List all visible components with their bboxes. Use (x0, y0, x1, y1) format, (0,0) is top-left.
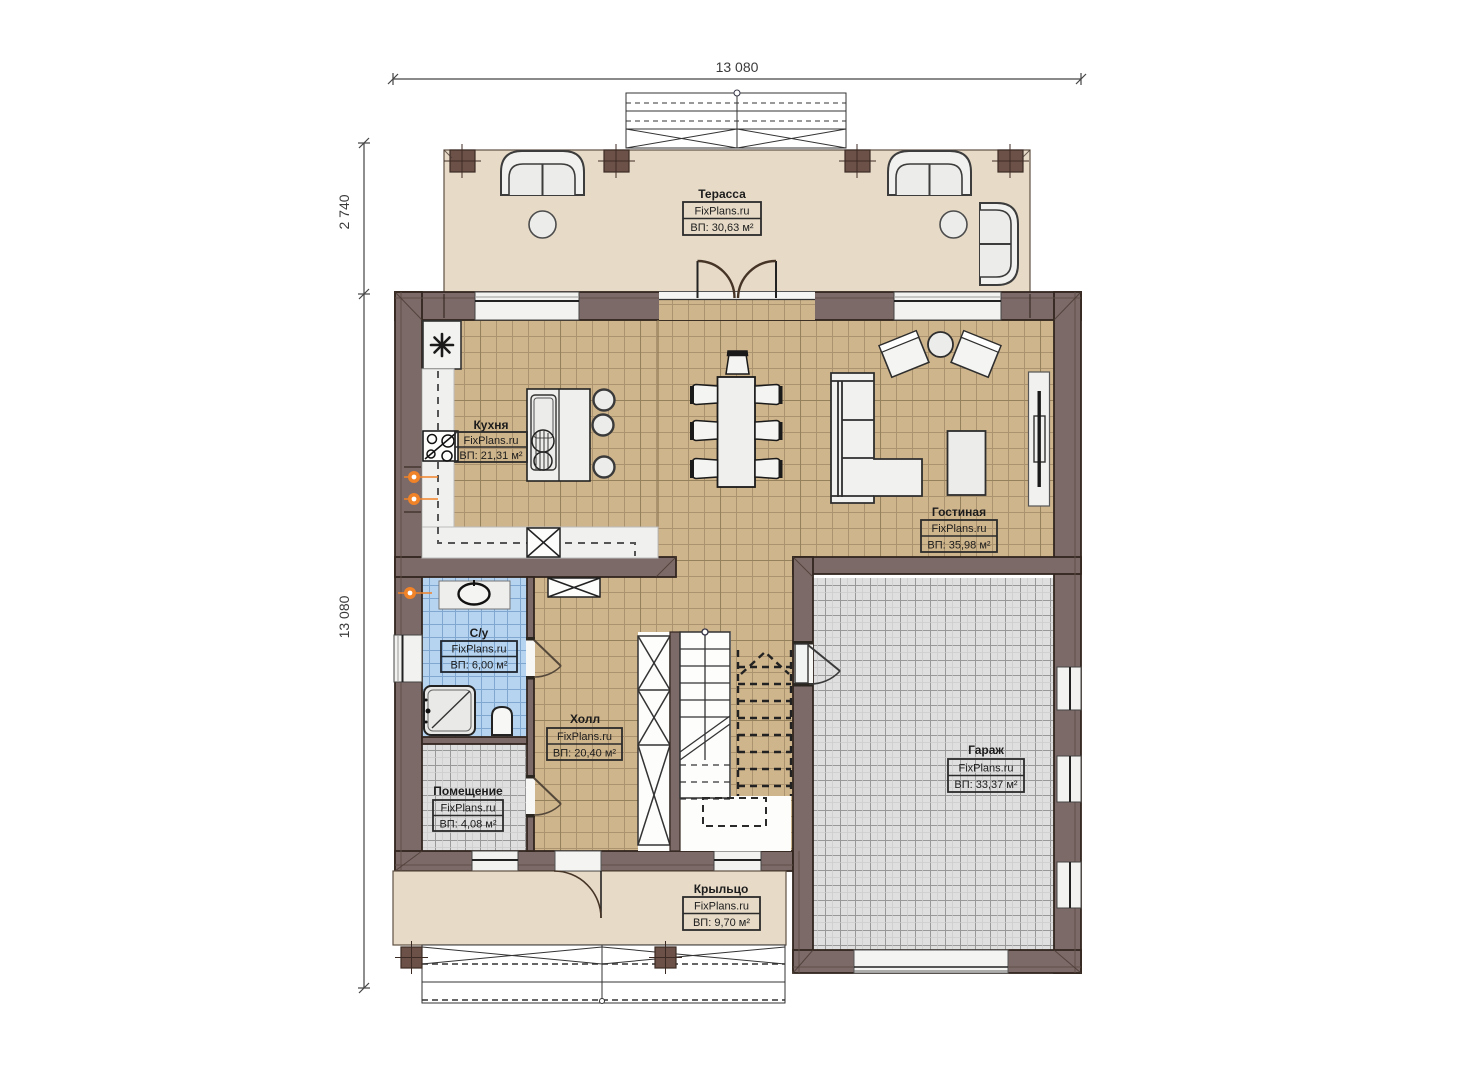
svg-text:Гараж: Гараж (968, 743, 1004, 757)
svg-text:ВП: 9,70 м²: ВП: 9,70 м² (693, 917, 750, 929)
svg-text:ВП: 20,40 м²: ВП: 20,40 м² (553, 748, 617, 760)
svg-text:13 080: 13 080 (336, 595, 352, 638)
svg-text:13 080: 13 080 (716, 59, 759, 75)
svg-text:ВП: 35,98 м²: ВП: 35,98 м² (927, 540, 991, 552)
svg-text:ВП: 33,37 м²: ВП: 33,37 м² (954, 779, 1018, 791)
svg-text:Помещение: Помещение (433, 784, 503, 798)
svg-text:С/у: С/у (470, 626, 489, 640)
svg-text:Крыльцо: Крыльцо (694, 882, 749, 896)
svg-text:FixPlans.ru: FixPlans.ru (463, 435, 518, 447)
svg-text:Терасса: Терасса (698, 187, 746, 201)
svg-text:FixPlans.ru: FixPlans.ru (557, 731, 612, 743)
svg-text:FixPlans.ru: FixPlans.ru (958, 763, 1013, 775)
svg-text:2 740: 2 740 (336, 194, 352, 229)
svg-text:FixPlans.ru: FixPlans.ru (694, 206, 749, 218)
svg-text:FixPlans.ru: FixPlans.ru (931, 523, 986, 535)
svg-text:FixPlans.ru: FixPlans.ru (451, 644, 506, 656)
svg-text:Кухня: Кухня (473, 418, 508, 432)
svg-text:ВП: 21,31 м²: ВП: 21,31 м² (459, 450, 523, 462)
svg-text:ВП: 4,08 м²: ВП: 4,08 м² (439, 819, 496, 831)
svg-text:FixPlans.ru: FixPlans.ru (694, 901, 749, 913)
svg-text:FixPlans.ru: FixPlans.ru (440, 803, 495, 815)
svg-text:Гостиная: Гостиная (932, 505, 986, 519)
svg-text:ВП: 30,63 м²: ВП: 30,63 м² (690, 222, 754, 234)
svg-text:ВП: 6,00 м²: ВП: 6,00 м² (450, 660, 507, 672)
svg-text:Холл: Холл (570, 712, 600, 726)
